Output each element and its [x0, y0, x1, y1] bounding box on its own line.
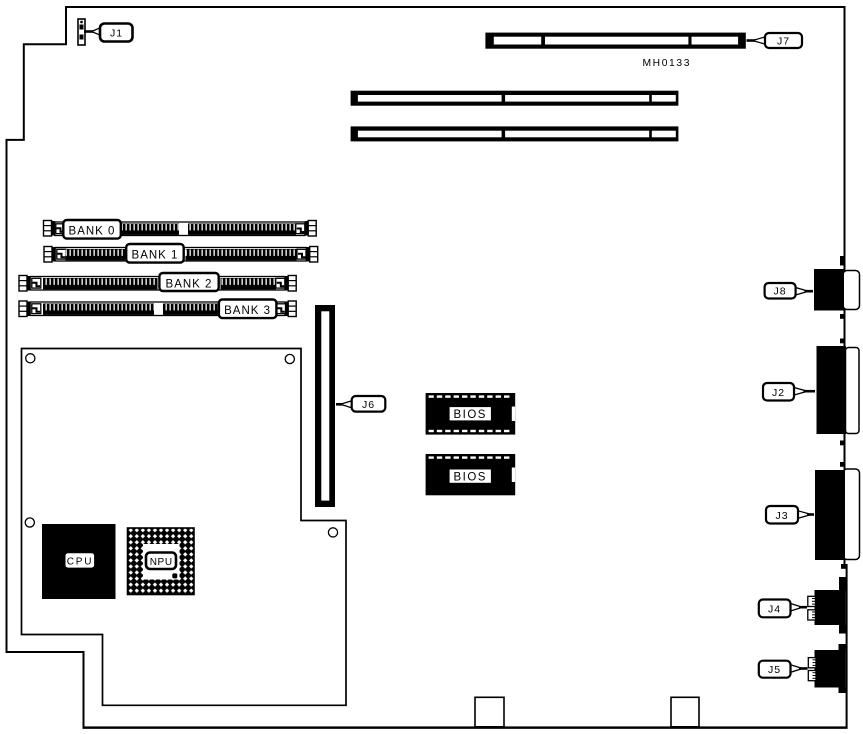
svg-text:CPU: CPU [67, 557, 94, 568]
svg-text:J6: J6 [362, 399, 375, 411]
svg-text:BANK 0: BANK 0 [69, 226, 116, 238]
svg-text:BANK 3: BANK 3 [224, 305, 271, 317]
svg-text:BANK 1: BANK 1 [132, 250, 179, 262]
svg-text:BIOS: BIOS [453, 409, 486, 421]
svg-text:J8: J8 [773, 286, 786, 298]
svg-text:NPU: NPU [150, 557, 173, 568]
svg-text:MH0133: MH0133 [643, 58, 692, 69]
svg-text:BIOS: BIOS [453, 471, 486, 483]
svg-text:J7: J7 [777, 36, 790, 48]
svg-text:J1: J1 [110, 28, 123, 40]
svg-text:J2: J2 [772, 387, 785, 399]
svg-text:BANK 2: BANK 2 [166, 278, 213, 290]
svg-text:J3: J3 [775, 510, 788, 522]
svg-text:J5: J5 [768, 664, 781, 676]
svg-text:J4: J4 [768, 603, 781, 615]
